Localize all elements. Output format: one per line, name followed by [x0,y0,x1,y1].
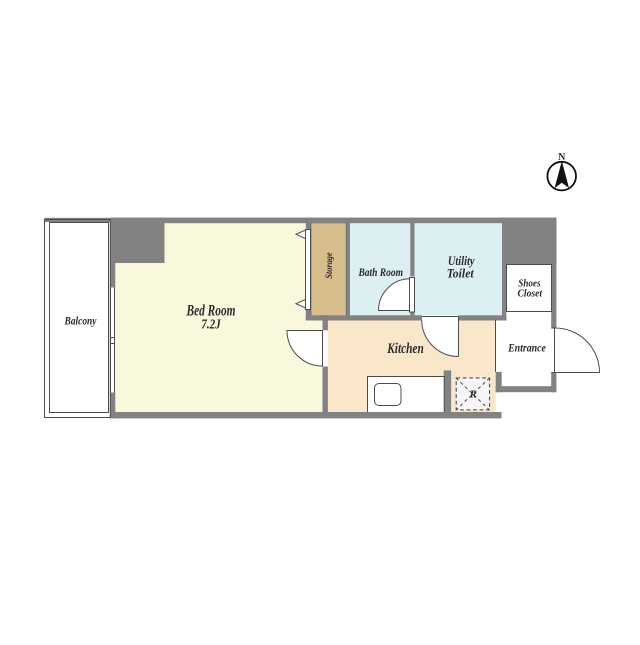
svg-text:Entrance: Entrance [507,341,546,355]
svg-text:Closet: Closet [518,287,543,299]
svg-text:Toilet: Toilet [447,266,474,280]
svg-text:Bath Room: Bath Room [358,265,403,279]
svg-text:Balcony: Balcony [64,313,97,327]
svg-text:Kitchen: Kitchen [386,341,423,357]
svg-text:R: R [469,389,477,400]
svg-text:Storage: Storage [325,252,335,279]
svg-text:7.2J: 7.2J [201,316,222,331]
